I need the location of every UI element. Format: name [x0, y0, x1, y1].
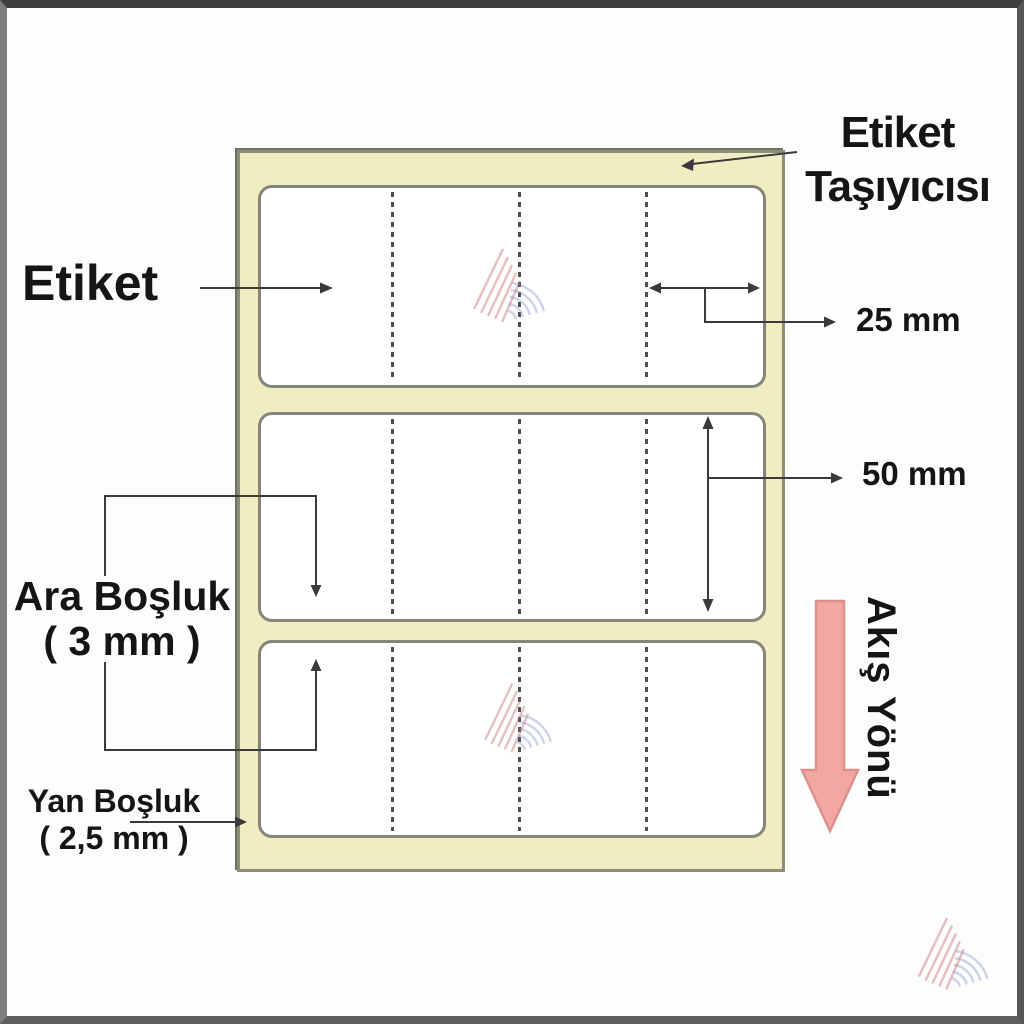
width-dimension-label: 25 mm: [856, 301, 961, 339]
height-dimension-label: 50 mm: [862, 455, 967, 493]
side-margin-line2: ( 2,5 mm ): [39, 820, 188, 856]
label-row-3: [258, 640, 766, 838]
gap-dimension-label: Ara Boşluk ( 3 mm ): [4, 574, 240, 664]
gap-dimension-line2: ( 3 mm ): [43, 618, 200, 664]
flow-direction-label: Akış Yönü: [858, 596, 903, 846]
side-margin-line1: Yan Boşluk: [28, 783, 201, 819]
carrier-label-line2: Taşıyıcısı: [805, 162, 990, 211]
label-row-2: [258, 412, 766, 622]
label-row-1: [258, 185, 766, 388]
carrier-label-line1: Etiket: [841, 108, 955, 157]
side-margin-dimension-label: Yan Boşluk ( 2,5 mm ): [14, 783, 214, 857]
carrier-label: Etiket Taşıyıcısı: [775, 106, 1020, 213]
etiket-label: Etiket: [22, 254, 158, 312]
gap-dimension-line1: Ara Boşluk: [14, 573, 230, 619]
